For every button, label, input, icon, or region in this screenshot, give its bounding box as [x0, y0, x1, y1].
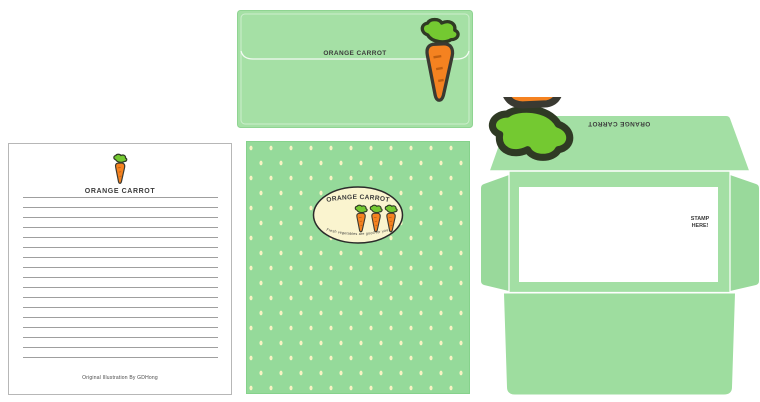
flap-brand-title: ORANGE CARROT: [588, 120, 650, 127]
carrot-badge: ORANGE CARROT Fresh vegetables are good …: [312, 185, 404, 250]
right-flap: [730, 175, 759, 291]
dotted-paper: ORANGE CARROT Fresh vegetables are good …: [246, 141, 470, 394]
stamp-label-line1: STAMP: [691, 216, 710, 222]
brand-title: ORANGE CARROT: [323, 50, 386, 57]
envelope-front: ORANGE CARROT: [237, 10, 473, 128]
letterhead-paper: ORANGE CARROT Original Illustration By G…: [8, 143, 232, 395]
left-flap: [481, 175, 509, 291]
ruled-lines: [23, 188, 218, 358]
bottom-flap: [504, 294, 735, 395]
envelope-template: STAMP HERE! ORANGE CARROT: [480, 97, 760, 397]
carrot-logo-icon: [109, 153, 131, 187]
address-area: [519, 187, 718, 282]
flap-carrot-icon: [492, 97, 569, 157]
credit-text: Original Illustration By GDHong: [9, 375, 231, 381]
stamp-label-line2: HERE!: [692, 223, 709, 229]
